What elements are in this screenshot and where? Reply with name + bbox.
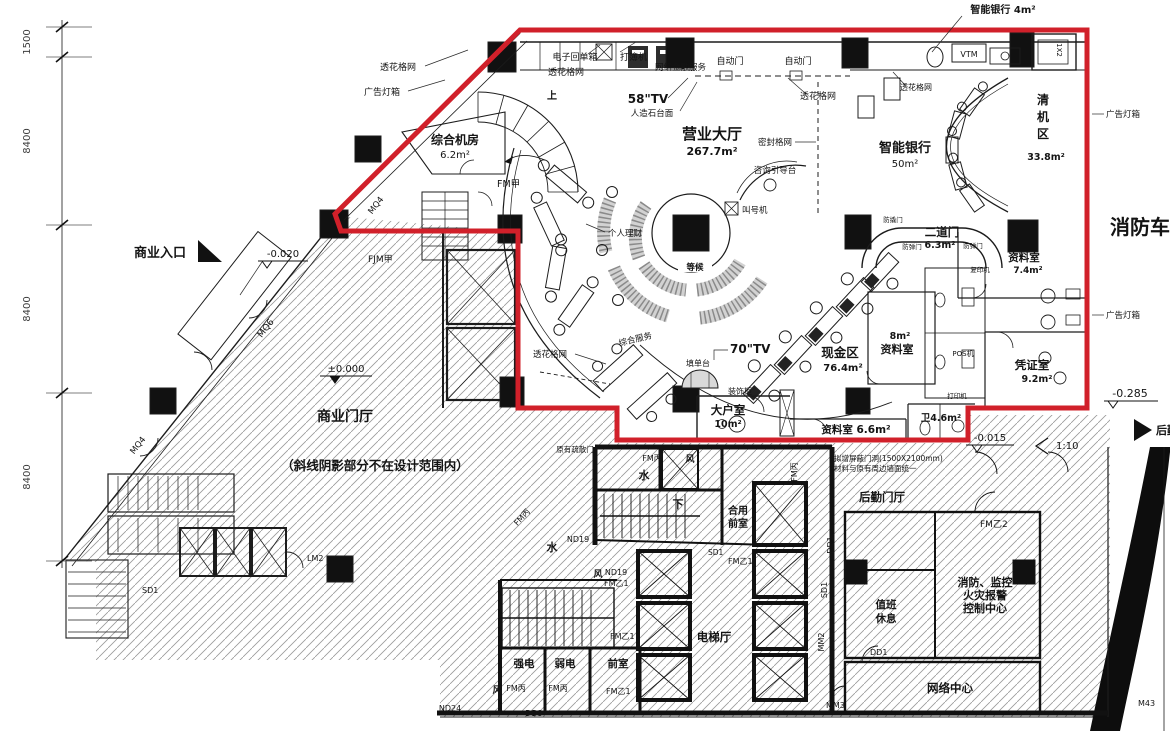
label-copier: 复印机 [970,265,990,274]
label-stone-counter: 人造石台面 [631,108,674,119]
label-tv58: 58"TV [628,92,669,106]
label-fire-lane: 消防车道 [1110,215,1170,239]
level-minus-0020: -0.020 [267,249,299,260]
dim-1500: 1500 [22,29,33,54]
code-nd19-2: ND19 [605,568,627,577]
label-biz-entry: 商业入口 [134,245,186,261]
label-booth: 1X2 [1055,43,1063,57]
label-biz-lobby: 商业门厅 [317,408,373,425]
code-dd1-2: DD1 [826,536,835,553]
code-fm-b1-2: FM乙1 [610,632,635,641]
label-receipt-box: 电子回单箱 [552,51,597,63]
level-zero: ±0.000 [327,364,364,375]
note-out-of-scope: （斜线阴影部分不在设计范围内） [281,458,469,473]
label-pry-door: 防撬门 [883,215,903,224]
label-fire-center-2: 火灾报警 [963,588,1007,602]
label-dataroom74-name: 资料室 [1008,251,1040,264]
code-nd19-1: ND19 [567,535,589,544]
label-air-1: 风 [685,454,694,465]
code-fm-c-1: FM丙 [506,684,526,693]
code-fm-b2: FM乙2 [980,519,1008,530]
level-minus-0285: -0.285 [1112,387,1147,400]
code-fm-c-3: FM丙 [642,454,662,463]
code-fm-c-5: FM丙 [790,462,799,482]
label-clearing-3: 区 [1037,127,1049,141]
label-dataroom8-name: 资料室 [881,342,914,356]
label-dataroom66: 资料室 6.6m² [821,423,891,436]
label-grille-1: 透花格网 [380,61,416,73]
label-network-center: 网络中心 [927,681,973,695]
label-water-2: 水 [547,540,559,554]
dim-8400-1: 8400 [22,128,33,153]
label-water-1: 水 [639,468,651,482]
label-stair-up: 上 [547,89,557,102]
label-duty-2: 休息 [875,612,897,625]
label-shared-anteroom-1: 合用 [727,504,748,517]
label-smartbank-small: 智能银行 4m² [970,3,1035,16]
label-dataroom8-area: 8m² [890,331,911,342]
label-logistics-lobby: 后勤门厅 [859,490,905,504]
label-smartbank-area: 50m² [892,159,918,170]
note-door-2: 材料与原有周边墙面统一 [834,463,917,473]
label-grille-2: 透花格网 [548,66,584,78]
code-fm-b1-4: FM乙1 [728,557,753,566]
floor-plan-page: 1500 8400 8400 8400 营业大厅 267.7m² 智能银行 50… [0,0,1170,731]
label-voucher-area: 9.2m² [1022,374,1053,385]
label-lightbox-3: 广告灯箱 [1106,310,1141,321]
level-minus-0015: -0.015 [974,433,1006,444]
dim-8400-2: 8400 [22,296,33,321]
label-vtm: VTM [960,50,977,59]
label-weak-elec: 弱电 [555,657,576,670]
code-lm2: LM2 [307,554,323,563]
code-fm-c-2: FM丙 [548,684,568,693]
label-bullet-door-1: 防弹门 [902,242,922,251]
floor-plan-canvas: 1500 8400 8400 8400 营业大厅 267.7m² 智能银行 50… [0,0,1170,731]
label-grille-3: 透花格网 [800,90,836,102]
code-sd1-3: SD1 [820,582,829,598]
note-door-1: 拟增屏蔽门洞(1500X2100mm) [834,453,943,463]
label-pos: POS机 [952,349,973,358]
label-dataroom74-area: 7.4m² [1013,266,1042,276]
label-lift-hall: 电梯厅 [697,630,732,644]
code-mm2: MM2 [817,633,826,652]
code-fm-b1-3: FM乙1 [606,687,631,696]
dim-8400-3: 8400 [22,464,33,489]
label-lightbox-2: 广告灯箱 [1106,109,1141,120]
label-cash-name: 现金区 [821,345,859,360]
label-form-desk: 填单台 [686,358,710,368]
label-shared-anteroom-2: 前室 [728,517,748,530]
label-hall-area: 267.7m² [686,145,737,158]
label-caller: 叫号机 [742,205,768,216]
label-ramp: 1:10 [1056,441,1078,452]
code-m43: M43 [1138,699,1155,708]
label-strong-elec: 强电 [514,657,535,670]
code-fjm-a: FJM甲 [368,254,393,265]
label-printer: 打印机 [947,391,967,400]
label-wc: 卫4.6m² [921,413,961,424]
code-mm3: MM3 [826,701,845,710]
label-clearing-1: 清 [1037,92,1049,107]
label-autodoor-2: 自动门 [784,55,811,67]
code-dd3: DD3 [525,709,542,718]
label-sealed-grille: 密封格网 [758,137,792,148]
code-fm-a: FM甲 [497,179,520,190]
label-orig-exit-door: 原有疏散门 [556,444,594,454]
label-clearing-2: 机 [1037,109,1049,124]
label-door2-name: 二道门 [925,225,960,239]
label-rear-exit: 后勤出入口 [1156,423,1170,437]
label-air-3: 风 [492,685,501,696]
label-stair-down: 下 [673,498,684,511]
label-net-finance: 网络金融服务 [655,62,707,73]
label-air-2: 风 [593,569,602,580]
label-anteroom: 前室 [608,657,629,670]
label-server-area: 6.2m² [440,150,470,161]
code-sd1-1: SD1 [142,586,158,595]
label-voucher-name: 凭证室 [1014,358,1050,372]
label-vip-area: 10m² [714,419,741,430]
code-nd24: ND24 [439,704,461,713]
label-bullet-door-2: 防弹门 [963,241,983,250]
label-door2-area: 6.3m² [925,240,956,251]
label-cash-area: 76.4m² [823,363,862,374]
label-fire-center-3: 控制中心 [963,601,1007,615]
label-fire-center-1: 消防、监控 [958,575,1013,589]
label-hall-name: 营业大厅 [682,125,742,143]
label-vip-name: 大户室 [711,403,746,417]
label-grille-4: 透花格网 [900,82,932,92]
label-lightbox-1: 广告灯箱 [364,86,400,98]
code-dd1-1: DD1 [870,648,887,657]
label-passbook-machine: 打簿机 [620,51,647,63]
label-clearing-area: 33.8m² [1027,152,1065,163]
label-decor-cabinet: 装饰柜 [728,386,752,396]
label-duty-1: 值班 [876,598,897,611]
label-smartbank-name: 智能银行 [879,140,931,156]
code-fm-b1-1: FM乙1 [604,579,629,588]
label-personal-finance: 个人理财 [608,228,643,239]
label-server-name: 综合机房 [431,132,479,147]
label-info-desk: 咨询引导台 [754,165,797,176]
label-grille-5: 透花格网 [533,349,567,360]
label-autodoor-1: 自动门 [716,55,743,67]
label-tv70: 70"TV [730,342,771,356]
label-waiting: 等候 [685,262,704,273]
code-sd1-2: SD1 [708,548,724,557]
